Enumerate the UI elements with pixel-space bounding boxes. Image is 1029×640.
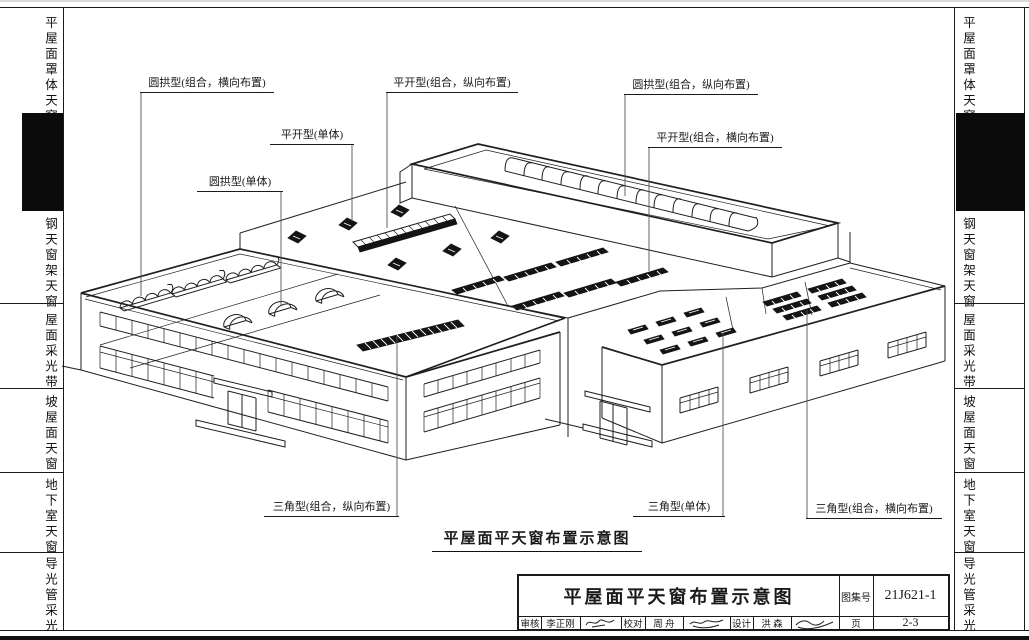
callout-arched-single: 圆拱型(单体) [197, 175, 283, 192]
triangular-skylight-combined-longitudinal [357, 320, 464, 351]
current-chapter-black-tab [956, 113, 1025, 211]
sidebar-divider [0, 303, 63, 304]
sidebar-divider [954, 552, 1025, 553]
sidebar-divider [954, 303, 1025, 304]
sidebar-item-steel-frame-skylight: 钢天窗架天窗 [958, 217, 978, 310]
sidebar-item-light-tube: 导光管采光 [958, 557, 978, 635]
sidebar-item-basement-skylight: 地下室天窗 [958, 478, 978, 556]
back-building-roof [400, 144, 838, 277]
sidebar-item-basement-skylight: 地下室天窗 [40, 478, 60, 556]
callout-flat-open-combined-longitudinal: 平开型(组合，纵向布置) [386, 76, 518, 93]
callout-leader-lines [141, 93, 807, 519]
page-label: 页 [839, 616, 873, 629]
side-facade-window-bands [406, 332, 560, 460]
sidebar-item-flat-roof-cover-skylight: 平屋面罩体天窗 [40, 16, 60, 125]
proof-label: 校对 [621, 616, 645, 629]
right-building-windows [680, 332, 926, 413]
title-block-drawing-title: 平屋面平天窗布置示意图 [519, 576, 839, 616]
review-label: 审核 [519, 616, 541, 629]
page-top-edge [0, 0, 1029, 2]
drawing-caption: 平屋面平天窗布置示意图 [432, 527, 642, 552]
design-label: 设计 [730, 616, 753, 629]
frame-right-line [954, 7, 955, 631]
sidebar-divider [954, 472, 1025, 473]
design-signature [791, 616, 839, 629]
barrel-vault-skylight-combined-longitudinal [505, 158, 758, 231]
atlas-page: 圆拱型(组合，横向布置) 平开型(组合，纵向布置) 平开型(单体) 圆拱型(单体… [0, 0, 1029, 640]
front-facade-window-bands [100, 312, 388, 443]
sidebar-item-pitched-roof-skylight: 坡屋面天窗 [958, 395, 978, 473]
callout-triangular-combined-longitudinal: 三角型(组合，纵向布置) [264, 500, 399, 517]
callout-triangular-combined-transverse: 三角型(组合，横向布置) [806, 502, 942, 519]
sidebar-divider [0, 472, 63, 473]
title-block: 平屋面平天窗布置示意图 图集号 21J621-1 审核 李正刚 校对 周 舟 设… [517, 574, 950, 631]
proofreader-name: 周 舟 [645, 616, 683, 629]
callout-arched-combined-longitudinal: 圆拱型(组合，纵向布置) [624, 78, 758, 95]
sidebar-item-flat-roof-cover-skylight: 平屋面罩体天窗 [958, 16, 978, 125]
designer-name: 洪 森 [753, 616, 791, 629]
review-signature [580, 616, 621, 629]
reviewer-name: 李正刚 [541, 616, 580, 629]
sidebar-item-roof-daylight-band: 屋面采光带 [40, 313, 60, 391]
sidebar-divider [954, 388, 1025, 389]
sidebar-item-light-tube: 导光管采光 [40, 557, 60, 635]
atlas-number-label: 图集号 [839, 576, 873, 616]
arched-skylights-single [221, 284, 344, 330]
right-building-door-with-canopy [583, 391, 652, 447]
flat-open-skylight-combined-longitudinal [353, 214, 457, 252]
frame-left-line [63, 7, 64, 631]
triangular-skylights-single [628, 308, 736, 354]
arched-skylights-combined-transverse [117, 255, 281, 312]
triangular-skylights-combined-transverse [763, 279, 866, 320]
signature-scribble [794, 617, 836, 629]
callout-flat-open-combined-transverse: 平开型(组合，横向布置) [648, 131, 782, 148]
right-building [545, 232, 945, 443]
sidebar-divider [0, 552, 63, 553]
page-bottom-edge [0, 636, 1029, 640]
proof-signature [683, 616, 730, 629]
signature-scribble [584, 617, 618, 629]
sidebar-item-roof-daylight-band: 屋面采光带 [958, 313, 978, 391]
callout-arched-combined-transverse: 圆拱型(组合，横向布置) [140, 76, 274, 93]
callout-flat-open-single: 平开型(单体) [270, 128, 354, 145]
sidebar-item-steel-frame-skylight: 钢天窗架天窗 [40, 217, 60, 310]
page-right-border [1024, 7, 1025, 631]
page-number: 2-3 [873, 616, 948, 629]
sidebar-item-pitched-roof-skylight: 坡屋面天窗 [40, 395, 60, 473]
current-chapter-black-tab [22, 113, 63, 211]
signature-scribble [687, 617, 727, 629]
atlas-number-value: 21J621-1 [873, 576, 948, 616]
frame-top-line [0, 7, 1029, 8]
sidebar-divider [0, 388, 63, 389]
callout-triangular-single: 三角型(单体) [633, 500, 725, 517]
